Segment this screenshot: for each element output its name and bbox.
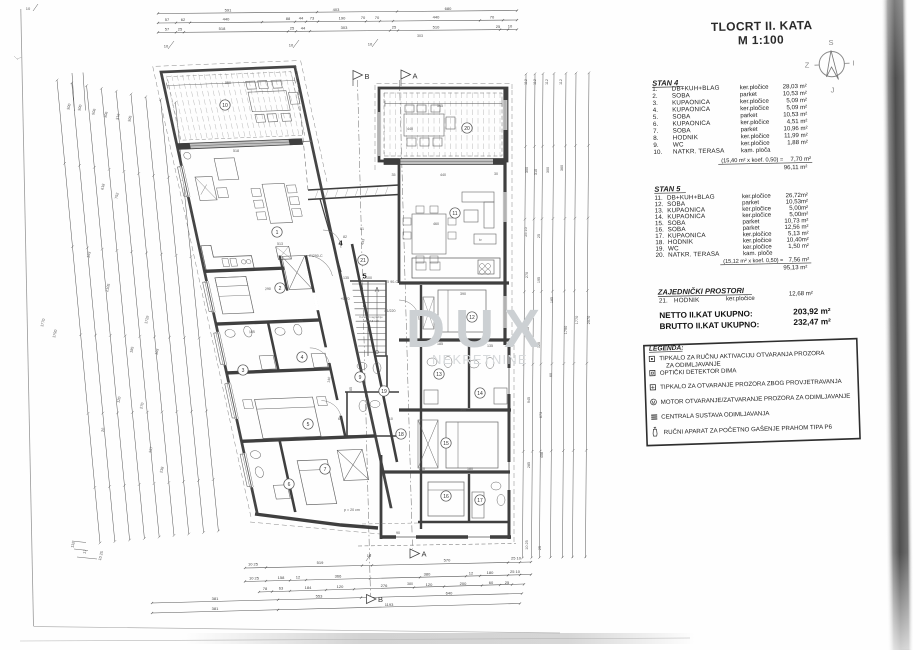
svg-text:25 10: 25 10 [511, 556, 522, 561]
svg-text:10: 10 [508, 24, 513, 29]
svg-text:232,47 m²: 232,47 m² [793, 317, 831, 327]
svg-text:1770: 1770 [575, 316, 579, 324]
svg-text:88: 88 [286, 16, 291, 21]
svg-text:390: 390 [460, 292, 466, 296]
svg-text:10: 10 [164, 44, 169, 49]
svg-text:945: 945 [527, 397, 531, 403]
svg-text:EI290-C: EI290-C [309, 254, 323, 258]
svg-text:110: 110 [387, 417, 393, 421]
svg-text:10: 10 [289, 43, 294, 48]
svg-text:195: 195 [537, 277, 541, 283]
svg-text:82: 82 [343, 235, 347, 239]
svg-text:290: 290 [265, 287, 271, 291]
svg-text:S: S [828, 38, 833, 47]
svg-text:1193: 1193 [385, 602, 394, 607]
svg-text:10: 10 [222, 103, 228, 109]
svg-text:381: 381 [212, 596, 219, 601]
svg-text:70: 70 [361, 15, 366, 20]
svg-text:210: 210 [419, 467, 425, 471]
svg-text:25: 25 [178, 26, 183, 31]
svg-text:+5,70: +5,70 [340, 297, 349, 301]
svg-text:180: 180 [487, 570, 494, 575]
svg-text:Z: Z [805, 61, 810, 70]
svg-text:360: 360 [560, 165, 564, 171]
svg-text:1,50 m²: 1,50 m² [788, 243, 809, 250]
svg-text:135: 135 [343, 276, 349, 280]
svg-text:ker.pločice: ker.pločice [726, 295, 756, 303]
svg-text:1,88 m²: 1,88 m² [787, 139, 808, 146]
svg-text:90: 90 [396, 531, 400, 535]
svg-text:408: 408 [540, 452, 544, 458]
svg-text:81: 81 [360, 227, 364, 231]
svg-text:44: 44 [299, 16, 304, 21]
svg-text:403: 403 [333, 7, 340, 12]
svg-text:18: 18 [398, 432, 404, 438]
svg-text:440: 440 [433, 15, 440, 20]
svg-text:460: 460 [433, 222, 439, 226]
svg-text:STAN 5: STAN 5 [654, 184, 681, 194]
svg-text:550: 550 [225, 81, 231, 85]
svg-text:185: 185 [249, 330, 255, 334]
svg-text:15: 15 [443, 441, 449, 447]
svg-text:10 25: 10 25 [249, 576, 260, 581]
svg-text:21: 21 [360, 258, 366, 264]
svg-text:10 25: 10 25 [248, 562, 259, 567]
svg-text:7,70 m²: 7,70 m² [790, 156, 811, 163]
svg-text:M: M [652, 400, 656, 405]
svg-text:105: 105 [349, 387, 353, 393]
svg-text:DUX: DUX [406, 299, 550, 359]
svg-text:303: 303 [341, 25, 348, 30]
svg-text:62: 62 [181, 17, 186, 22]
svg-text:100: 100 [366, 276, 372, 280]
svg-text:200: 200 [460, 581, 467, 586]
svg-text:300: 300 [546, 167, 550, 173]
svg-text:14: 14 [477, 391, 483, 397]
svg-text:380: 380 [407, 582, 413, 586]
svg-text:518: 518 [233, 149, 239, 153]
svg-text:NEKRETNINE: NEKRETNINE [432, 352, 528, 367]
svg-text:20.: 20. [656, 252, 665, 259]
svg-text:190: 190 [339, 15, 346, 20]
svg-text:1790: 1790 [564, 326, 568, 334]
svg-text:17: 17 [477, 498, 483, 504]
svg-text:J: J [831, 86, 835, 95]
svg-text:2070: 2070 [587, 316, 591, 324]
svg-text:57: 57 [165, 26, 170, 31]
svg-text:570: 570 [444, 558, 451, 563]
svg-text:3: 3 [242, 368, 245, 374]
svg-text:25: 25 [496, 24, 501, 29]
svg-text:M 1:100: M 1:100 [738, 32, 784, 47]
svg-text:25: 25 [290, 25, 295, 30]
svg-text:kam. ploče: kam. ploče [743, 250, 773, 258]
svg-text:440: 440 [223, 16, 230, 21]
svg-text:10 25: 10 25 [525, 540, 529, 550]
svg-text:2: 2 [279, 286, 282, 292]
svg-text:180: 180 [467, 467, 473, 471]
svg-text:112: 112 [524, 79, 528, 85]
svg-text:KUPAONICA: KUPAONICA [672, 106, 711, 114]
svg-text:25 10: 25 10 [524, 227, 528, 237]
svg-text:35: 35 [392, 173, 396, 177]
svg-text:640: 640 [446, 591, 453, 596]
svg-text:11: 11 [452, 211, 457, 217]
svg-text:10: 10 [368, 42, 373, 47]
svg-text:12: 12 [296, 574, 301, 579]
svg-text:673: 673 [539, 412, 543, 418]
svg-text:A: A [413, 72, 418, 81]
svg-text:591: 591 [225, 8, 232, 13]
svg-text:kam. ploča: kam. ploča [741, 147, 771, 155]
svg-text:545: 545 [437, 104, 443, 108]
svg-text:184: 184 [305, 585, 312, 590]
svg-text:303: 303 [417, 34, 423, 38]
svg-text:25: 25 [537, 234, 541, 238]
svg-text:A: A [422, 550, 427, 559]
svg-text:HODNIK: HODNIK [673, 134, 699, 142]
svg-text:7,56 m²: 7,56 m² [788, 256, 809, 263]
svg-text:120: 120 [426, 582, 433, 587]
svg-text:276: 276 [381, 583, 388, 588]
svg-text:57: 57 [165, 17, 170, 22]
svg-text:10: 10 [26, 6, 31, 11]
svg-text:16: 16 [443, 494, 449, 500]
svg-text:25: 25 [392, 25, 397, 30]
svg-text:96,11 m²: 96,11 m² [784, 164, 808, 171]
svg-text:270: 270 [525, 272, 529, 278]
svg-text:81/220: 81/220 [385, 309, 396, 313]
svg-text:B: B [378, 595, 383, 604]
svg-text:p = 20 cm: p = 20 cm [344, 508, 360, 512]
svg-text:EI 90-C: EI 90-C [386, 280, 399, 284]
svg-text:366: 366 [335, 574, 342, 579]
svg-text:B: B [365, 72, 370, 81]
svg-text:112: 112 [559, 79, 563, 85]
svg-text:381: 381 [212, 606, 219, 611]
svg-text:5: 5 [307, 422, 310, 428]
svg-text:NETTO II.KAT UKUPNO:: NETTO II.KAT UKUPNO: [659, 309, 753, 320]
svg-text:44: 44 [301, 25, 306, 30]
svg-text:112: 112 [533, 79, 537, 85]
svg-text:25 10: 25 10 [510, 569, 521, 574]
svg-text:63: 63 [279, 586, 284, 591]
svg-text:6: 6 [288, 482, 291, 488]
svg-text:21.: 21. [659, 297, 668, 304]
svg-text:DB+KUH+BLAG: DB+KUH+BLAG [672, 85, 720, 93]
svg-text:95,13 m²: 95,13 m² [783, 264, 807, 271]
svg-text:380: 380 [424, 572, 431, 577]
svg-text:519: 519 [317, 560, 324, 565]
svg-text:12,68 m²: 12,68 m² [789, 290, 813, 297]
svg-text:285: 285 [527, 462, 531, 468]
svg-text:NATKR. TERASA: NATKR. TERASA [673, 148, 725, 156]
svg-text:13: 13 [436, 372, 442, 378]
svg-text:60: 60 [489, 580, 494, 585]
svg-text:73: 73 [310, 16, 315, 21]
svg-text:17x17,5 / 28: 17x17,5 / 28 [363, 319, 379, 323]
svg-text:tv: tv [479, 238, 482, 242]
svg-text:63: 63 [338, 417, 342, 421]
svg-text:112: 112 [545, 79, 549, 85]
svg-text:70: 70 [490, 14, 495, 19]
svg-text:300: 300 [525, 167, 529, 173]
svg-text:513: 513 [277, 242, 283, 246]
svg-text:185: 185 [297, 319, 303, 323]
svg-text:12: 12 [469, 571, 474, 576]
svg-text:20: 20 [464, 126, 470, 132]
svg-text:I: I [852, 59, 854, 68]
svg-text:553: 553 [316, 594, 323, 599]
svg-text:19: 19 [381, 389, 387, 395]
svg-text:HODNIK: HODNIK [674, 297, 700, 305]
svg-text:NATKR. TERASA: NATKR. TERASA [668, 251, 720, 259]
svg-text:440: 440 [440, 173, 446, 177]
svg-text:158: 158 [278, 575, 285, 580]
svg-text:203,92 m²: 203,92 m² [793, 307, 831, 317]
svg-text:KUPAONICA: KUPAONICA [672, 120, 711, 128]
svg-text:1: 1 [276, 230, 279, 236]
svg-text:310: 310 [534, 169, 538, 175]
svg-text:25: 25 [505, 580, 510, 585]
svg-text:680: 680 [445, 6, 452, 11]
svg-text:440: 440 [407, 127, 413, 131]
svg-text:185: 185 [550, 297, 554, 303]
svg-text:518: 518 [219, 26, 226, 31]
svg-text:78: 78 [263, 586, 268, 591]
svg-text:4: 4 [301, 355, 304, 361]
svg-text:TLOCRT II. KATA: TLOCRT II. KATA [711, 18, 813, 34]
svg-text:70: 70 [375, 15, 380, 20]
svg-text:390: 390 [460, 408, 466, 412]
svg-text:60: 60 [549, 373, 553, 377]
svg-text:30: 30 [494, 172, 498, 176]
svg-text:9: 9 [359, 375, 362, 381]
svg-text:7: 7 [324, 467, 327, 473]
svg-text:510: 510 [433, 24, 440, 29]
svg-text:25: 25 [538, 546, 542, 550]
svg-text:120: 120 [337, 584, 344, 589]
svg-text:10.: 10. [653, 149, 662, 156]
